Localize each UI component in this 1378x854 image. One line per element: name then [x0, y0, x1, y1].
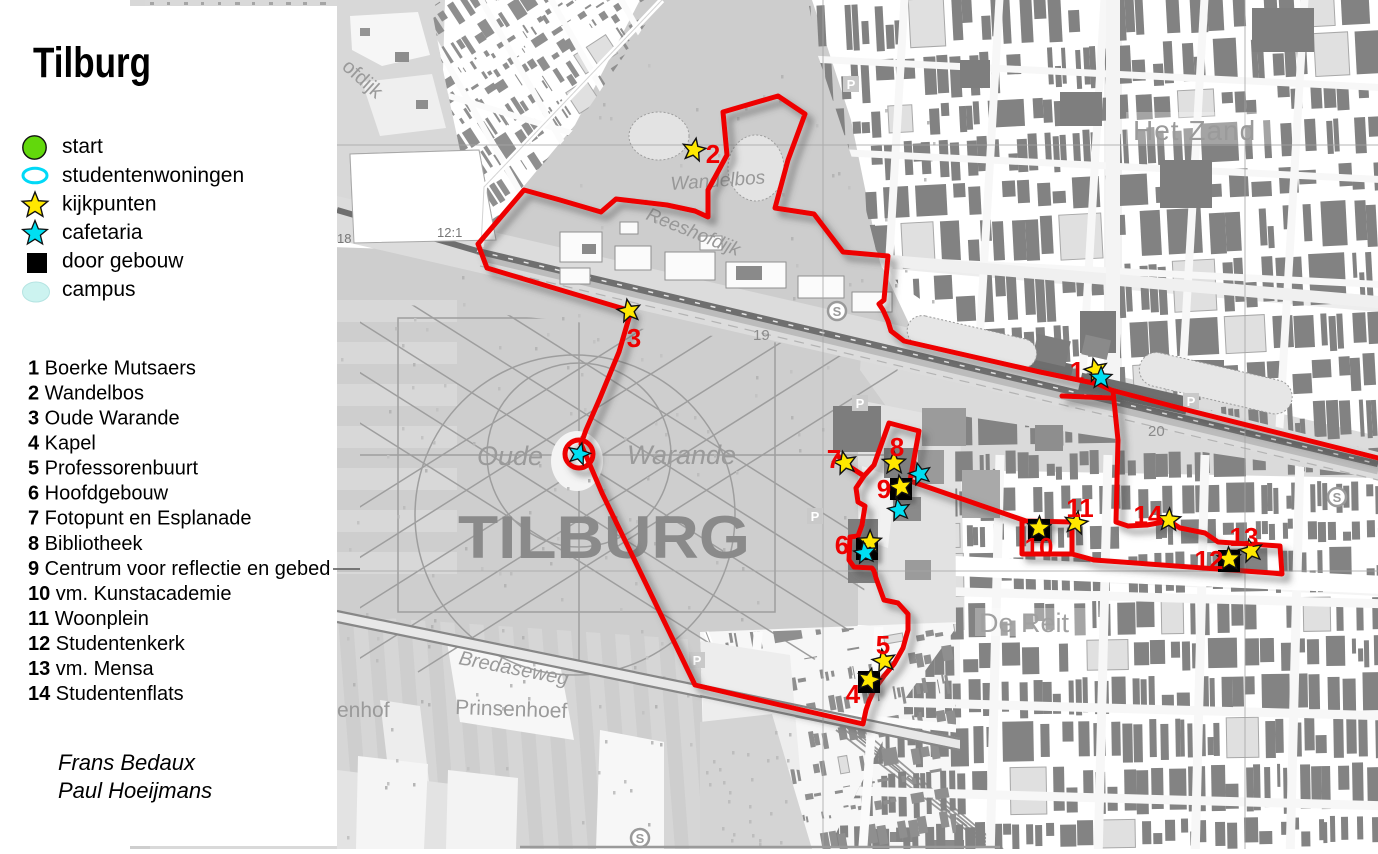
- svg-text:12: 12: [1195, 545, 1224, 575]
- svg-text:3 Oude Warande: 3 Oude Warande: [28, 408, 180, 430]
- svg-text:13: 13: [1230, 522, 1259, 552]
- svg-text:3: 3: [627, 323, 641, 353]
- svg-text:2: 2: [706, 139, 720, 169]
- svg-text:1 Boerke Mutsaers: 1 Boerke Mutsaers: [28, 357, 196, 379]
- svg-text:S: S: [1333, 490, 1342, 505]
- svg-text:kijkpunten: kijkpunten: [62, 192, 157, 215]
- svg-text:5 Professorenbuurt: 5 Professorenbuurt: [28, 458, 199, 480]
- svg-text:Paul Hoeijmans: Paul Hoeijmans: [58, 778, 212, 803]
- svg-text:8 Bibliotheek: 8 Bibliotheek: [28, 533, 144, 555]
- svg-text:10: 10: [1025, 532, 1054, 562]
- svg-text:Het Zand: Het Zand: [1133, 115, 1256, 146]
- svg-text:De Reit: De Reit: [979, 608, 1070, 638]
- svg-text:cafetaria: cafetaria: [62, 221, 143, 244]
- svg-text:door gebouw: door gebouw: [62, 250, 184, 273]
- svg-text:2 Wandelbos: 2 Wandelbos: [28, 382, 144, 404]
- svg-text:TILBURG: TILBURG: [458, 504, 750, 571]
- svg-text:14: 14: [1134, 500, 1163, 530]
- svg-text:18: 18: [337, 231, 351, 246]
- svg-text:5: 5: [876, 630, 890, 660]
- svg-text:13 vm. Mensa: 13 vm. Mensa: [28, 658, 154, 680]
- svg-text:4: 4: [846, 679, 861, 709]
- svg-text:Oude: Oude: [477, 441, 543, 471]
- svg-text:start: start: [62, 135, 103, 158]
- svg-text:11 Woonplein: 11 Woonplein: [28, 608, 149, 630]
- svg-text:19: 19: [753, 327, 770, 344]
- svg-text:20: 20: [1148, 423, 1165, 440]
- svg-text:P: P: [811, 509, 820, 524]
- svg-text:studentenwoningen: studentenwoningen: [62, 164, 244, 187]
- svg-text:Warande: Warande: [627, 440, 736, 470]
- svg-text:P: P: [847, 77, 856, 92]
- svg-text:9 Centrum voor reflectie en ge: 9 Centrum voor reflectie en gebed: [28, 558, 330, 580]
- svg-text:campus: campus: [62, 278, 136, 301]
- svg-text:12 Studentenkerk: 12 Studentenkerk: [28, 633, 186, 655]
- svg-text:S: S: [833, 304, 842, 319]
- svg-text:P: P: [693, 653, 702, 668]
- svg-text:S: S: [636, 831, 645, 846]
- svg-text:8: 8: [890, 432, 904, 462]
- svg-text:10 vm. Kunstacademie: 10 vm. Kunstacademie: [28, 583, 231, 605]
- svg-text:1: 1: [1070, 356, 1084, 386]
- svg-text:P: P: [856, 396, 865, 411]
- svg-text:Frans Bedaux: Frans Bedaux: [58, 750, 196, 775]
- svg-text:9: 9: [877, 474, 891, 504]
- svg-text:P: P: [1187, 394, 1196, 409]
- svg-text:12:1: 12:1: [437, 225, 462, 240]
- svg-text:Tilburg: Tilburg: [33, 39, 151, 87]
- svg-text:14 Studentenflats: 14 Studentenflats: [28, 683, 184, 705]
- svg-text:6: 6: [835, 530, 849, 560]
- svg-text:4 Kapel: 4 Kapel: [28, 433, 96, 455]
- svg-text:Prinsenhoef: Prinsenhoef: [455, 696, 568, 723]
- svg-text:7 Fotopunt en Esplanade: 7 Fotopunt en Esplanade: [28, 508, 252, 530]
- svg-text:11: 11: [1066, 493, 1094, 523]
- svg-text:6 Hoofdgebouw: 6 Hoofdgebouw: [28, 483, 169, 505]
- svg-text:enhof: enhof: [337, 699, 390, 722]
- svg-text:7: 7: [827, 444, 841, 474]
